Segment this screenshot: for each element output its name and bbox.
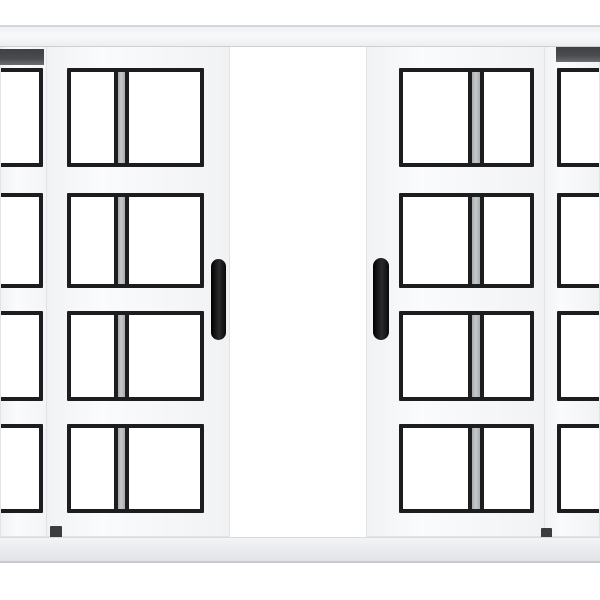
pane-pair-row <box>399 193 534 288</box>
left-sash-handle <box>211 259 226 340</box>
sash-right-inner <box>366 44 549 537</box>
pane-pair-row <box>0 193 43 288</box>
rear-sash-stile-through-glass <box>114 315 129 397</box>
rear-sash-stile-through-glass <box>468 428 484 509</box>
pane-pair-row <box>67 68 204 167</box>
pane-pair-row <box>399 424 534 513</box>
rear-sash-stile-through-glass <box>468 315 484 397</box>
sash-left-inner <box>46 44 230 537</box>
right-sash-handle <box>373 258 389 340</box>
top-frame-rail <box>0 25 600 47</box>
pane-pair-row <box>557 68 600 167</box>
pane-pair-row <box>0 424 43 513</box>
rear-sash-stile-through-glass <box>114 197 129 284</box>
pane-pair-row <box>399 68 534 167</box>
rear-sash-stile-through-glass <box>468 197 484 284</box>
top-track-left <box>0 49 44 65</box>
rear-sash-stile-through-glass <box>468 72 484 163</box>
sash-right-outer <box>544 44 600 537</box>
window-product-photo <box>0 0 600 600</box>
pane-pair-row <box>67 424 204 513</box>
rear-sash-stile-through-glass <box>114 72 129 163</box>
rear-sash-stile-through-glass <box>114 428 129 509</box>
pane-pair-row <box>67 311 204 401</box>
pane-pair-row <box>557 424 600 513</box>
pane-pair-row <box>0 311 43 401</box>
pane-pair-row <box>67 193 204 288</box>
pane-pair-row <box>399 311 534 401</box>
bottom-frame-rail <box>0 537 600 563</box>
pane-pair-row <box>557 193 600 288</box>
pane-pair-row <box>557 311 600 401</box>
pane-pair-row <box>0 68 43 167</box>
top-track-right <box>556 46 600 62</box>
